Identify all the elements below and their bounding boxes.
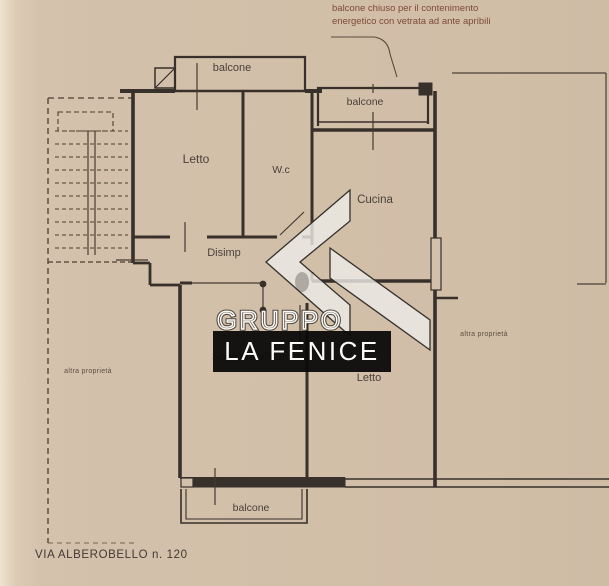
annotation-line-2: energetico con vetrata ad ante apribili bbox=[332, 16, 490, 29]
stair-treads bbox=[55, 131, 128, 248]
address-label: VIA ALBEROBELLO n. 120 bbox=[35, 549, 188, 561]
watermark-la-fenice: LA FENICE bbox=[224, 336, 379, 367]
room-label-balcone-bottom: balcone bbox=[233, 502, 270, 514]
room-label-disimp: Disimp bbox=[207, 247, 241, 259]
room-label-balcone-top-right: balcone bbox=[347, 96, 384, 108]
watermark-band: LA FENICE bbox=[213, 331, 391, 372]
stairwell bbox=[48, 98, 138, 543]
floorplan-scan: GRUPPO GRUPPO balcone chiuso per il cont… bbox=[0, 0, 609, 586]
room-label-cucina: Cucina bbox=[357, 194, 393, 206]
annotation-leader-line bbox=[331, 37, 397, 77]
annotation-line-1: balcone chiuso per il contenimento bbox=[332, 3, 490, 16]
room-label-wc: W.c bbox=[272, 164, 290, 176]
room-label-letto-1: Letto bbox=[183, 152, 210, 166]
room-label-balcone-top-left: balcone bbox=[213, 62, 252, 74]
neighbor-label-left: altra proprietà bbox=[64, 368, 112, 375]
annotation-note: balcone chiuso per il contenimento energ… bbox=[332, 3, 490, 28]
floor-plan-drawing: GRUPPO GRUPPO bbox=[0, 0, 609, 586]
door-swing-wc bbox=[280, 212, 304, 235]
partition-soggiorno bbox=[192, 283, 263, 310]
room-label-letto-2: Letto bbox=[357, 372, 381, 384]
neighbor-walls bbox=[452, 73, 606, 284]
window-cucina-right bbox=[431, 238, 441, 290]
neighbor-label-right: altra proprietà bbox=[460, 331, 508, 338]
